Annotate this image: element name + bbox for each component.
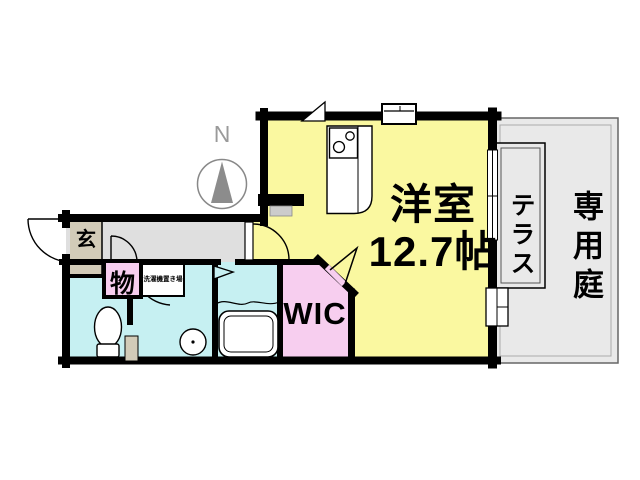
sink-icon — [180, 329, 206, 355]
compass-icon — [198, 160, 247, 209]
stove-icon — [330, 128, 358, 158]
wic-label: WIC — [278, 296, 352, 332]
main-room-label: 洋室 12.7帖 — [337, 181, 529, 275]
storage-label: 物 — [104, 264, 141, 300]
wall-stub-counter — [270, 206, 292, 216]
laundry-label: 洗濯機置き場 — [142, 273, 184, 283]
main-room-size: 12.7帖 — [337, 228, 529, 275]
entrance-label: 玄 — [70, 223, 102, 252]
toilet-icon — [95, 307, 122, 357]
terrace-label: テラス — [503, 192, 539, 279]
main-room-name: 洋室 — [337, 181, 529, 228]
floor-plan: 洋室 12.7帖 WIC テラス 専用庭 玄 物 洗濯機置き場 N — [0, 0, 640, 480]
vent-box — [382, 104, 416, 124]
compass-north-label: N — [208, 121, 236, 148]
garden-step-unit — [486, 288, 508, 326]
washroom-pillar — [125, 336, 138, 361]
garden-label: 専用庭 — [563, 190, 608, 307]
